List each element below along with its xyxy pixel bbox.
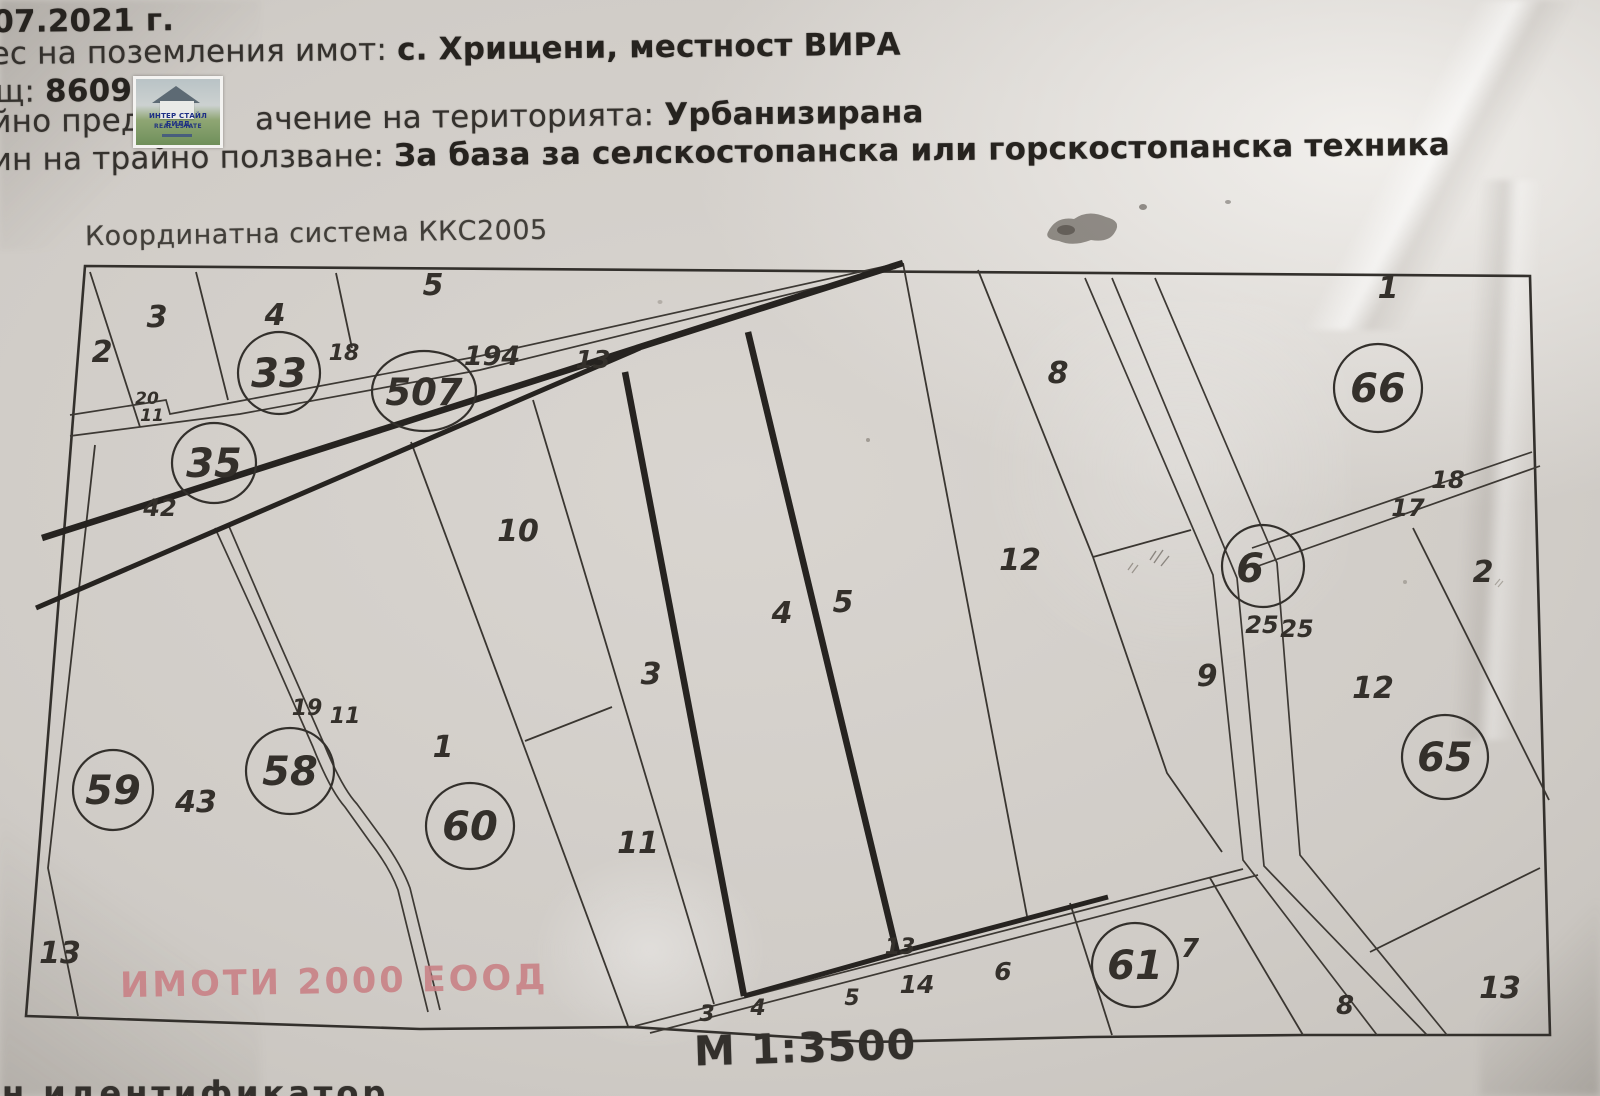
parcel-label-43: 43 <box>174 785 217 820</box>
circled-label-58: 58 <box>262 749 318 795</box>
circled-label-66: 66 <box>1350 366 1406 412</box>
parcel-label-13-bottomright: 13 <box>1479 971 1521 1006</box>
bold-parcel-outline <box>36 263 1108 996</box>
parcel-label-3-topleft: 3 <box>147 300 168 335</box>
parcel-label-10: 10 <box>497 514 539 549</box>
parcel-label-12: 12 <box>999 543 1041 578</box>
circled-parcel-33: 33 <box>238 332 320 414</box>
road-label-14-bottom: 14 <box>900 970 935 999</box>
circled-parcel-66: 66 <box>1334 344 1422 432</box>
road-label-18-topleft: 18 <box>329 341 360 366</box>
parcel-label-11: 11 <box>617 826 659 861</box>
road-label-11-topleft: 11 <box>140 406 164 426</box>
road-label-19: 19 <box>292 696 323 721</box>
cadastral-map: 33 507 35 66 6 59 <box>0 0 1600 1096</box>
scanned-cadastral-sketch: 07.2021 г. ес на поземления имот: с. Хри… <box>0 0 1600 1096</box>
circled-parcel-65: 65 <box>1402 715 1488 799</box>
parcel-label-5-topleft: 5 <box>423 268 444 303</box>
road-label-11-center: 11 <box>330 704 361 729</box>
circled-label-61: 61 <box>1107 943 1163 989</box>
road-label-13-bottom: 13 <box>885 935 916 960</box>
road-label-13-topleft: 13 <box>576 345 611 374</box>
parcel-label-5: 5 <box>833 585 854 620</box>
road-label-42: 42 <box>142 494 176 522</box>
road-label-25-b: 25 <box>1280 615 1313 643</box>
circled-parcel-6: 6 <box>1222 525 1304 607</box>
road-label-17-right: 17 <box>1391 494 1425 522</box>
circled-label-60: 60 <box>442 804 498 850</box>
circled-label-35: 35 <box>186 441 242 487</box>
circled-label-6: 6 <box>1236 546 1264 592</box>
parcel-circles: 33 507 35 66 6 59 <box>73 332 1488 1007</box>
parcel-label-8: 8 <box>1048 356 1069 391</box>
parcel-label-13-bottomleft: 13 <box>39 936 81 971</box>
road-label-4-bottom: 4 <box>749 996 765 1021</box>
circled-parcel-60: 60 <box>426 783 514 869</box>
parcel-label-7: 7 <box>1181 934 1200 964</box>
parcel-label-4: 4 <box>771 596 793 631</box>
circled-label-59: 59 <box>85 768 141 814</box>
parcel-label-8-bottom: 8 <box>1336 991 1354 1021</box>
circled-parcel-59: 59 <box>73 750 153 830</box>
circled-parcel-35: 35 <box>172 423 256 503</box>
parcel-label-9: 9 <box>1197 659 1218 694</box>
parcel-label-1-topright: 1 <box>1378 271 1399 306</box>
circled-parcel-61: 61 <box>1092 923 1178 1007</box>
parcel-label-3: 3 <box>641 657 662 692</box>
parcel-label-4-topleft: 4 <box>264 298 286 333</box>
road-label-194: 194 <box>464 341 520 372</box>
road-label-18-right: 18 <box>1431 466 1464 494</box>
watermark: ИМОТИ 2000 ЕООД <box>120 958 549 1006</box>
parcel-label-2-topleft: 2 <box>92 335 113 370</box>
bottom-cut-text: н идентификатор <box>2 1074 389 1096</box>
circled-label-33: 33 <box>251 351 307 397</box>
circled-label-65: 65 <box>1417 735 1473 781</box>
road-label-3-bottom: 3 <box>699 1002 714 1027</box>
parcel-label-2-right: 2 <box>1473 555 1494 590</box>
map-scale-label: М 1:3500 <box>693 1021 917 1076</box>
parcel-label-1: 1 <box>433 730 454 765</box>
circled-parcel-58: 58 <box>246 728 334 814</box>
road-label-6-bottom: 6 <box>994 957 1011 986</box>
parcel-label-12-right: 12 <box>1352 671 1394 706</box>
road-label-5-bottom: 5 <box>844 986 859 1011</box>
circled-label-507: 507 <box>385 371 462 414</box>
road-label-25-a: 25 <box>1245 611 1278 639</box>
